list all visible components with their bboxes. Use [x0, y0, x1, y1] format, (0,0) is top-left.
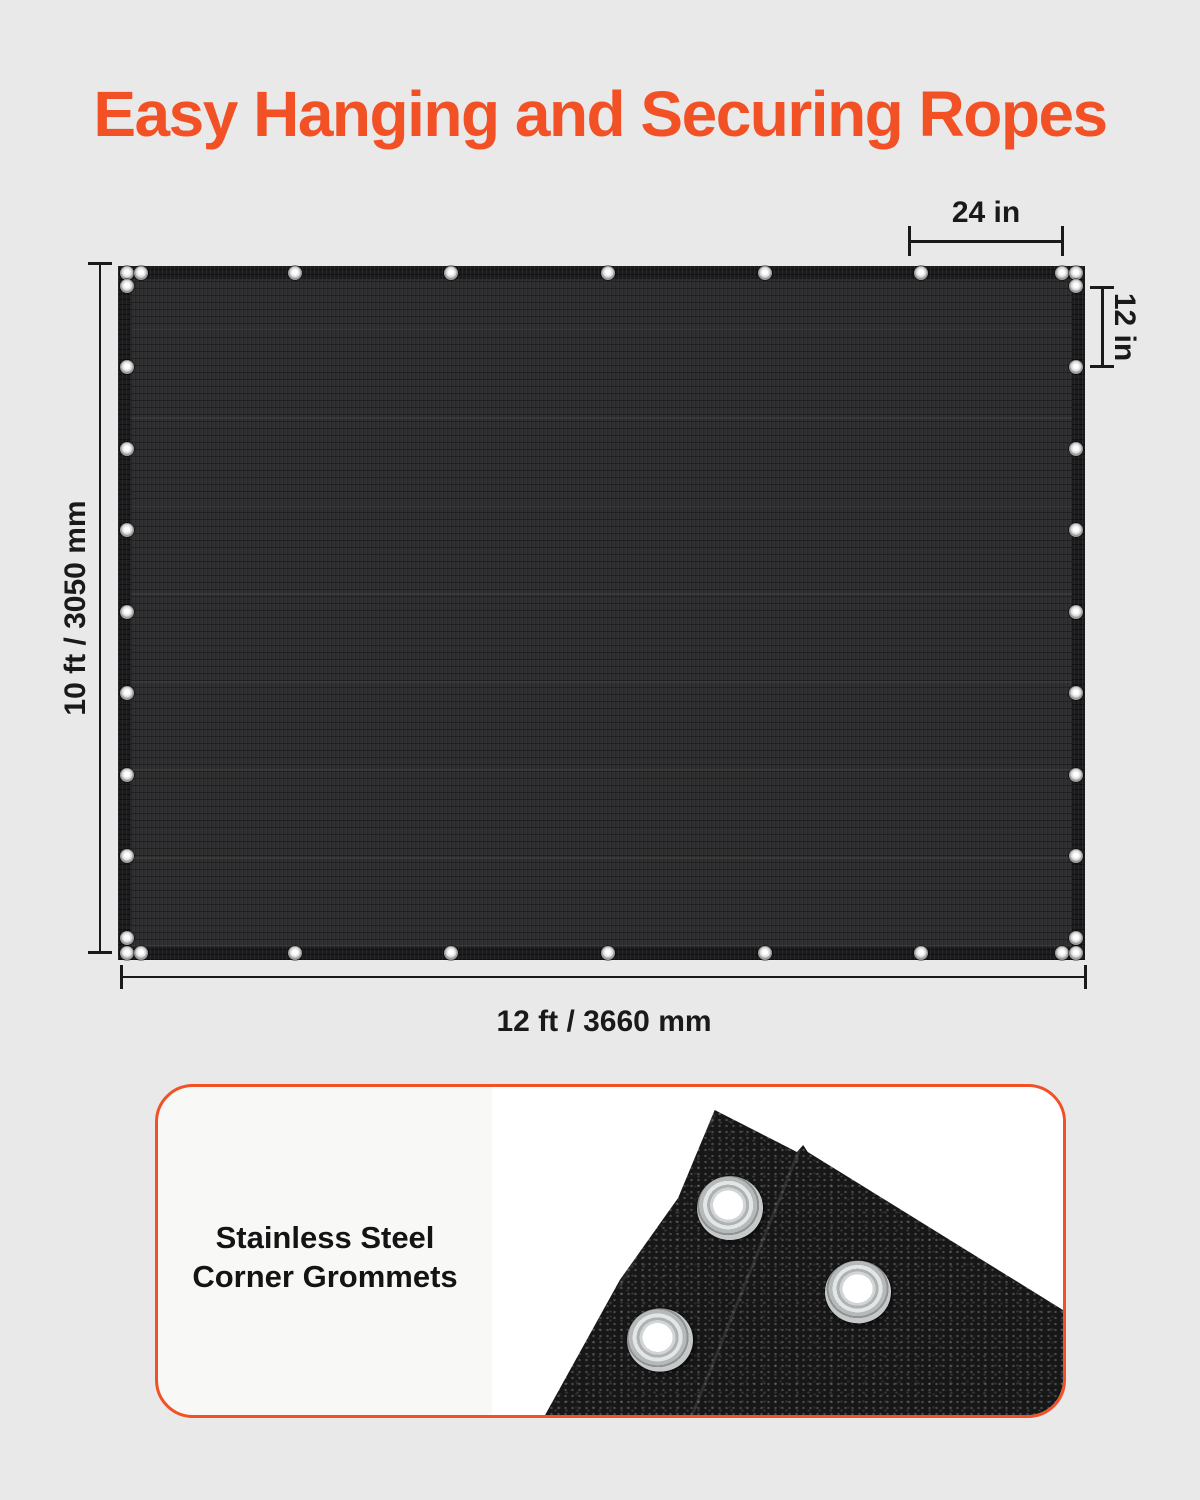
dimension-tick [1061, 226, 1064, 256]
grommet-icon [1069, 686, 1083, 700]
grommet-icon [120, 279, 134, 293]
shade-cloth [118, 266, 1085, 960]
page-title: Easy Hanging and Securing Ropes [0, 82, 1200, 146]
dimension-line-12in [1101, 287, 1104, 367]
grommet-icon [1055, 946, 1069, 960]
grommet-icon [120, 849, 134, 863]
dimension-tick [1090, 286, 1114, 289]
dimension-tick [1084, 965, 1087, 989]
grommet-icon [120, 686, 134, 700]
grommet-closeup-photo [492, 1087, 1063, 1415]
dimension-tick [908, 226, 911, 256]
grommet-icon [120, 442, 134, 456]
grommet-icon [120, 266, 134, 280]
dimension-tick [120, 965, 123, 989]
grommet-icon [120, 523, 134, 537]
grommet-icon [1055, 266, 1069, 280]
card-caption-line2: Corner Grommets [158, 1257, 492, 1296]
grommet-icon [444, 266, 458, 280]
grommet-icon [1069, 360, 1083, 374]
grommet-icon [758, 266, 772, 280]
dimension-line-height [99, 263, 101, 953]
grommet-icon [288, 946, 302, 960]
grommet-icon [1069, 523, 1083, 537]
grommet-icon [1069, 605, 1083, 619]
grommet-icon [120, 360, 134, 374]
shade-cloth-fabric [131, 279, 1072, 947]
grommet-icon [914, 266, 928, 280]
dimension-label-24in: 24 in [952, 198, 1020, 228]
grommet-icon [444, 946, 458, 960]
grommet-icon [120, 946, 134, 960]
grommet-icon [1069, 931, 1083, 945]
dimension-label-height: 10 ft / 3050 mm [61, 500, 91, 715]
grommet-icon [1069, 266, 1083, 280]
dimension-line-width [121, 976, 1086, 978]
grommet-icon [758, 946, 772, 960]
grommet-icon [134, 946, 148, 960]
grommet-icon [134, 266, 148, 280]
grommet-icon [1069, 768, 1083, 782]
dimension-tick [88, 951, 112, 954]
grommet-icon [120, 605, 134, 619]
dimension-tick [88, 262, 112, 265]
dimension-label-12in: 12 in [1109, 293, 1139, 361]
grommet-icon [288, 266, 302, 280]
grommet-icon [1069, 849, 1083, 863]
grommet-icon [914, 946, 928, 960]
grommet-icon [1069, 279, 1083, 293]
card-caption-line1: Stainless Steel [158, 1218, 492, 1257]
feature-card: Stainless Steel Corner Grommets [155, 1084, 1066, 1418]
product-infographic: Easy Hanging and Securing Ropes 24 in 12… [0, 0, 1200, 1500]
dimension-tick [1090, 365, 1114, 368]
dimension-label-width: 12 ft / 3660 mm [496, 1007, 711, 1037]
grommet-icon [120, 931, 134, 945]
card-caption: Stainless Steel Corner Grommets [158, 1218, 492, 1296]
dimension-line-24in [909, 240, 1063, 243]
grommet-icon [120, 768, 134, 782]
fabric-corner [492, 1087, 1063, 1415]
grommet-icon [1069, 442, 1083, 456]
grommet-icon [601, 266, 615, 280]
grommet-icon [1069, 946, 1083, 960]
grommet-icon [601, 946, 615, 960]
